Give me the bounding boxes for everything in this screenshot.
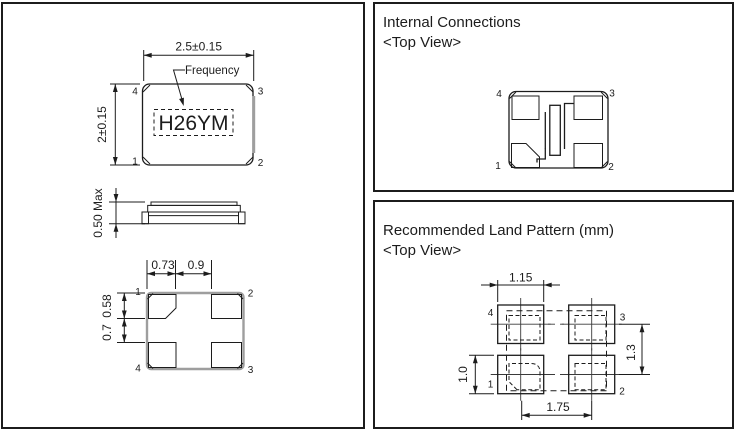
land-pattern-title: Recommended Land Pattern (mm) xyxy=(383,222,614,239)
dim-pad-width: 0.73 xyxy=(151,258,175,272)
ic-pad-2 xyxy=(574,144,603,168)
crystal-element xyxy=(550,105,561,155)
crystal-datasheet-drawing: 2.5±0.15 2±0.15 H26YM Frequency xyxy=(0,0,736,433)
package-marking: H26YM xyxy=(158,112,228,135)
top-view: 2.5±0.15 2±0.15 H26YM Frequency xyxy=(95,40,264,170)
ic-corner-castellations xyxy=(510,92,608,168)
dim-row-pitch: 1.3 xyxy=(624,344,638,361)
crystal-wire-pin3 xyxy=(565,104,575,113)
dimension-views-drawing: 2.5±0.15 2±0.15 H26YM Frequency xyxy=(3,4,363,427)
bottom-view-pin-bl: 4 xyxy=(135,364,141,375)
dim-body-height: 2±0.15 xyxy=(95,106,109,143)
dim-pad-height: 0.58 xyxy=(100,294,114,318)
ic-pin-bl: 1 xyxy=(495,161,501,172)
land-pattern-panel: Recommended Land Pattern (mm) <Top View> xyxy=(373,200,734,429)
side-metallization xyxy=(252,96,255,153)
ic-pad-3 xyxy=(574,96,603,120)
top-view-pin-tr: 3 xyxy=(258,87,264,98)
lp-pin-tl: 4 xyxy=(488,308,494,319)
top-view-pin-bl: 1 xyxy=(132,157,138,168)
internal-connections-panel: Internal Connections <Top View> 4 3 1 xyxy=(373,2,734,192)
bottom-view-pin-br: 3 xyxy=(248,365,254,376)
bottom-body-outline xyxy=(147,293,244,369)
ic-pad-1 xyxy=(512,144,540,168)
lp-pin-tr: 3 xyxy=(620,313,626,324)
dim-land-height: 1.0 xyxy=(456,366,470,383)
dim-col-pitch: 1.75 xyxy=(546,400,570,414)
dim-pad-gap: 0.9 xyxy=(188,258,205,272)
dim-body-width: 2.5±0.15 xyxy=(175,40,222,54)
overlay-pad-1 xyxy=(509,364,540,390)
lp-pin-bl: 1 xyxy=(488,380,494,391)
top-view-pin-br: 2 xyxy=(258,158,264,169)
side-view: 0.50 Max xyxy=(91,188,245,238)
ic-pin-tr: 3 xyxy=(609,89,615,100)
center-lines xyxy=(491,298,622,401)
frequency-label: Frequency xyxy=(185,65,240,77)
overlay-pad-2 xyxy=(575,364,606,390)
overlay-pad-3 xyxy=(575,316,606,341)
ic-body-outline xyxy=(509,92,608,169)
dim-pad-vgap: 0.7 xyxy=(100,324,114,341)
crystal-electrodes xyxy=(545,112,564,149)
overlay-pad-4 xyxy=(509,316,540,341)
internal-connections-title: Internal Connections xyxy=(383,14,521,31)
bottom-view-pin-tr: 2 xyxy=(248,289,254,300)
internal-connections-drawing: Internal Connections <Top View> 4 3 1 xyxy=(375,4,732,190)
internal-connections-subtitle: <Top View> xyxy=(383,34,461,51)
ic-pad-4 xyxy=(512,96,539,120)
ic-pin-br: 2 xyxy=(608,162,614,173)
side-terminal-right xyxy=(239,212,246,224)
bottom-view: 0.73 0.9 0.58 0.7 xyxy=(100,258,254,376)
dim-body-thickness: 0.50 Max xyxy=(91,188,105,237)
top-view-pin-tl: 4 xyxy=(132,87,138,98)
land-pattern-subtitle: <Top View> xyxy=(383,242,461,259)
package-dimensions-panel: 2.5±0.15 2±0.15 H26YM Frequency xyxy=(1,2,365,429)
bottom-view-pin-tl: 1 xyxy=(135,287,141,298)
side-terminal-left xyxy=(142,212,149,224)
land-pattern-drawing: Recommended Land Pattern (mm) <Top View> xyxy=(375,202,732,427)
ic-pin-tl: 4 xyxy=(496,89,502,100)
dim-land-width: 1.15 xyxy=(509,271,533,285)
lp-pin-br: 2 xyxy=(619,387,625,398)
